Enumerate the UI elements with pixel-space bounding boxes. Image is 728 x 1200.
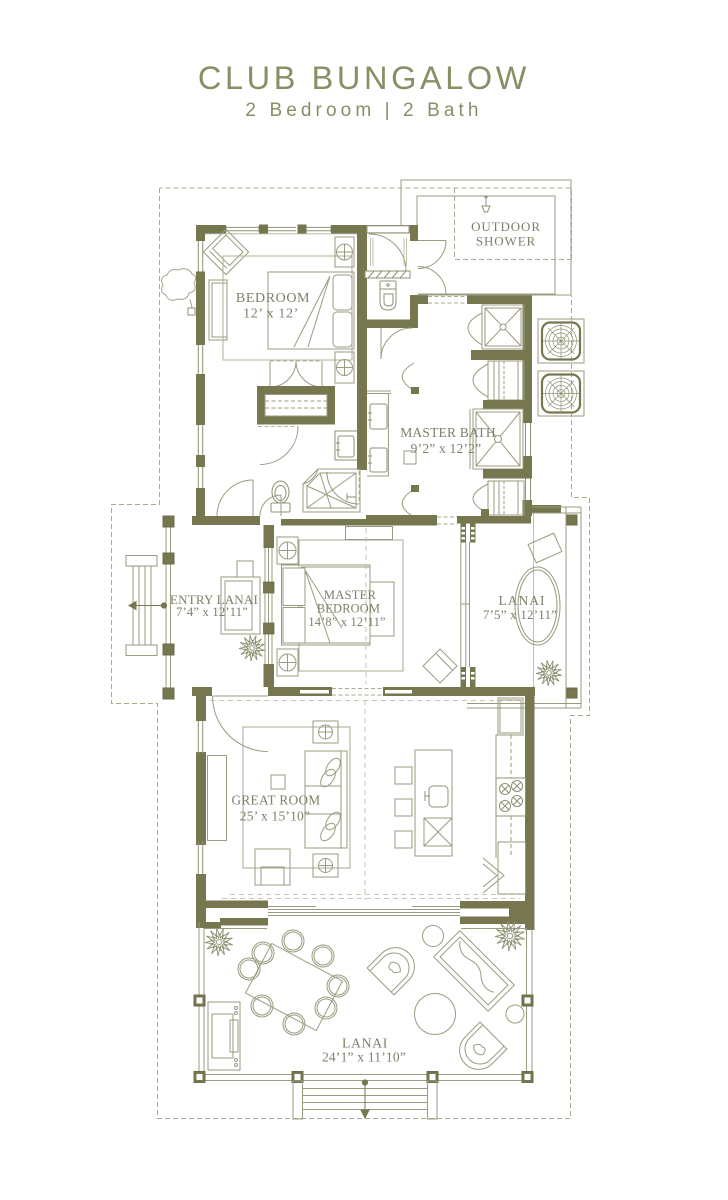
svg-text:MASTER BATH: MASTER BATH (400, 425, 496, 440)
svg-text:SHOWER: SHOWER (476, 234, 536, 249)
svg-text:BEDROOM: BEDROOM (317, 602, 380, 616)
svg-text:GREAT ROOM: GREAT ROOM (231, 793, 320, 808)
svg-text:CLUB BUNGALOW: CLUB BUNGALOW (198, 60, 530, 96)
svg-text:BEDROOM: BEDROOM (236, 291, 310, 306)
svg-text:24’1” x 11’10”: 24’1” x 11’10” (322, 1050, 406, 1065)
svg-text:2 Bedroom | 2 Bath: 2 Bedroom | 2 Bath (245, 100, 482, 121)
svg-text:7’4” x 12’11”: 7’4” x 12’11” (176, 605, 248, 619)
svg-text:MASTER: MASTER (324, 588, 377, 602)
svg-text:12’ x 12’: 12’ x 12’ (243, 307, 299, 322)
svg-text:7’5” x 12’11”: 7’5” x 12’11” (483, 607, 557, 622)
svg-text:LANAI: LANAI (499, 593, 546, 608)
svg-text:25’ x 15’10”: 25’ x 15’10” (240, 809, 310, 824)
svg-text:LANAI: LANAI (342, 1036, 388, 1051)
svg-text:OUTDOOR: OUTDOOR (471, 219, 541, 234)
svg-text:14’8” x 12’11”: 14’8” x 12’11” (308, 615, 385, 629)
svg-text:9’2” x 12’2”: 9’2” x 12’2” (411, 441, 482, 456)
